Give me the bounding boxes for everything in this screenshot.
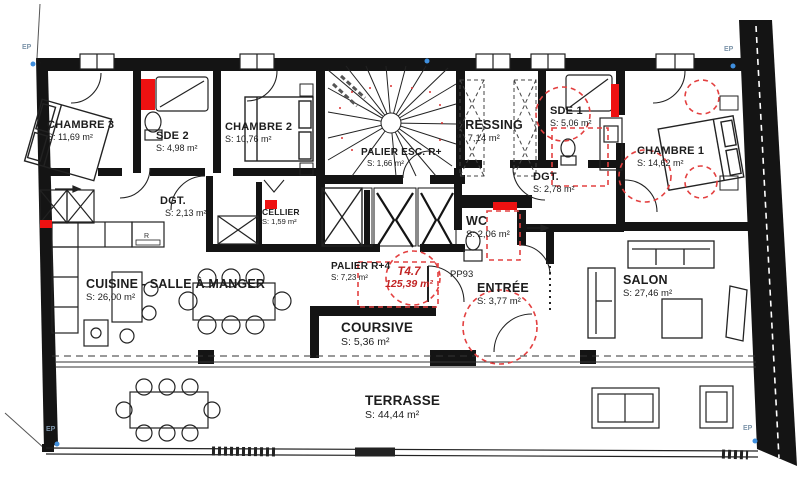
room-label-sde-2: SDE 2 S: 4,98 m² — [156, 130, 198, 154]
room-label-entree: ENTRÉE S: 3,77 m² — [477, 281, 529, 308]
ep-label-top-right: EP — [724, 46, 733, 53]
room-label-palier-esc: PALIER ESC. R+ S: 1,66 m² — [361, 147, 442, 169]
room-label-chambre-2: CHAMBRE 2 S: 10,76 m² — [225, 121, 292, 145]
room-label-cuisine: CUISINE - SALLE À MANGER S: 26,00 m² — [86, 277, 265, 304]
unit-code: T4.7 — [378, 266, 440, 278]
room-label-cellier: CELLIER S: 1,59 m² — [262, 207, 300, 227]
room-label-dgt-left: DGT. S: 2,13 m² — [160, 195, 207, 219]
ep-label-bottom-left: EP — [46, 426, 55, 433]
floorplan-canvas: R — [0, 0, 800, 483]
room-label-salon: SALON S: 27,46 m² — [623, 273, 672, 300]
room-label-chambre-1: CHAMBRE 1 S: 14,62 m² — [637, 145, 704, 169]
terrace-railing — [46, 448, 758, 457]
room-label-wc: WC S: 2,06 m² — [466, 214, 510, 241]
room-label-sde-1: SDE 1 S: 5,06 m² — [550, 105, 592, 129]
red-duct-markers — [40, 79, 619, 228]
room-label-terrasse: TERRASSE S: 44,44 m² — [365, 393, 440, 422]
fridge-letter: R — [144, 233, 149, 240]
room-label-dgt-right: DGT. S: 2,78 m² — [533, 171, 575, 195]
room-area: S: 11,69 m² — [47, 132, 114, 143]
door-ref-label: PP93 — [450, 269, 473, 280]
technical-closet-doors — [374, 188, 456, 247]
room-label-dressing: DRESSING S: 7,14 m² — [456, 118, 523, 145]
ep-label-top-left: EP — [22, 44, 31, 51]
room-label-chambre-3: CHAMBRE 3 S: 11,69 m² — [47, 119, 114, 143]
glass-facade — [52, 356, 757, 367]
room-name: CHAMBRE 3 — [47, 119, 114, 132]
unit-area: 125,39 m² — [378, 278, 440, 290]
ep-label-bottom-right: EP — [743, 425, 752, 432]
unit-tag: T4.7 125,39 m² — [378, 266, 440, 290]
room-label-coursive: COURSIVE S: 5,36 m² — [341, 320, 413, 349]
